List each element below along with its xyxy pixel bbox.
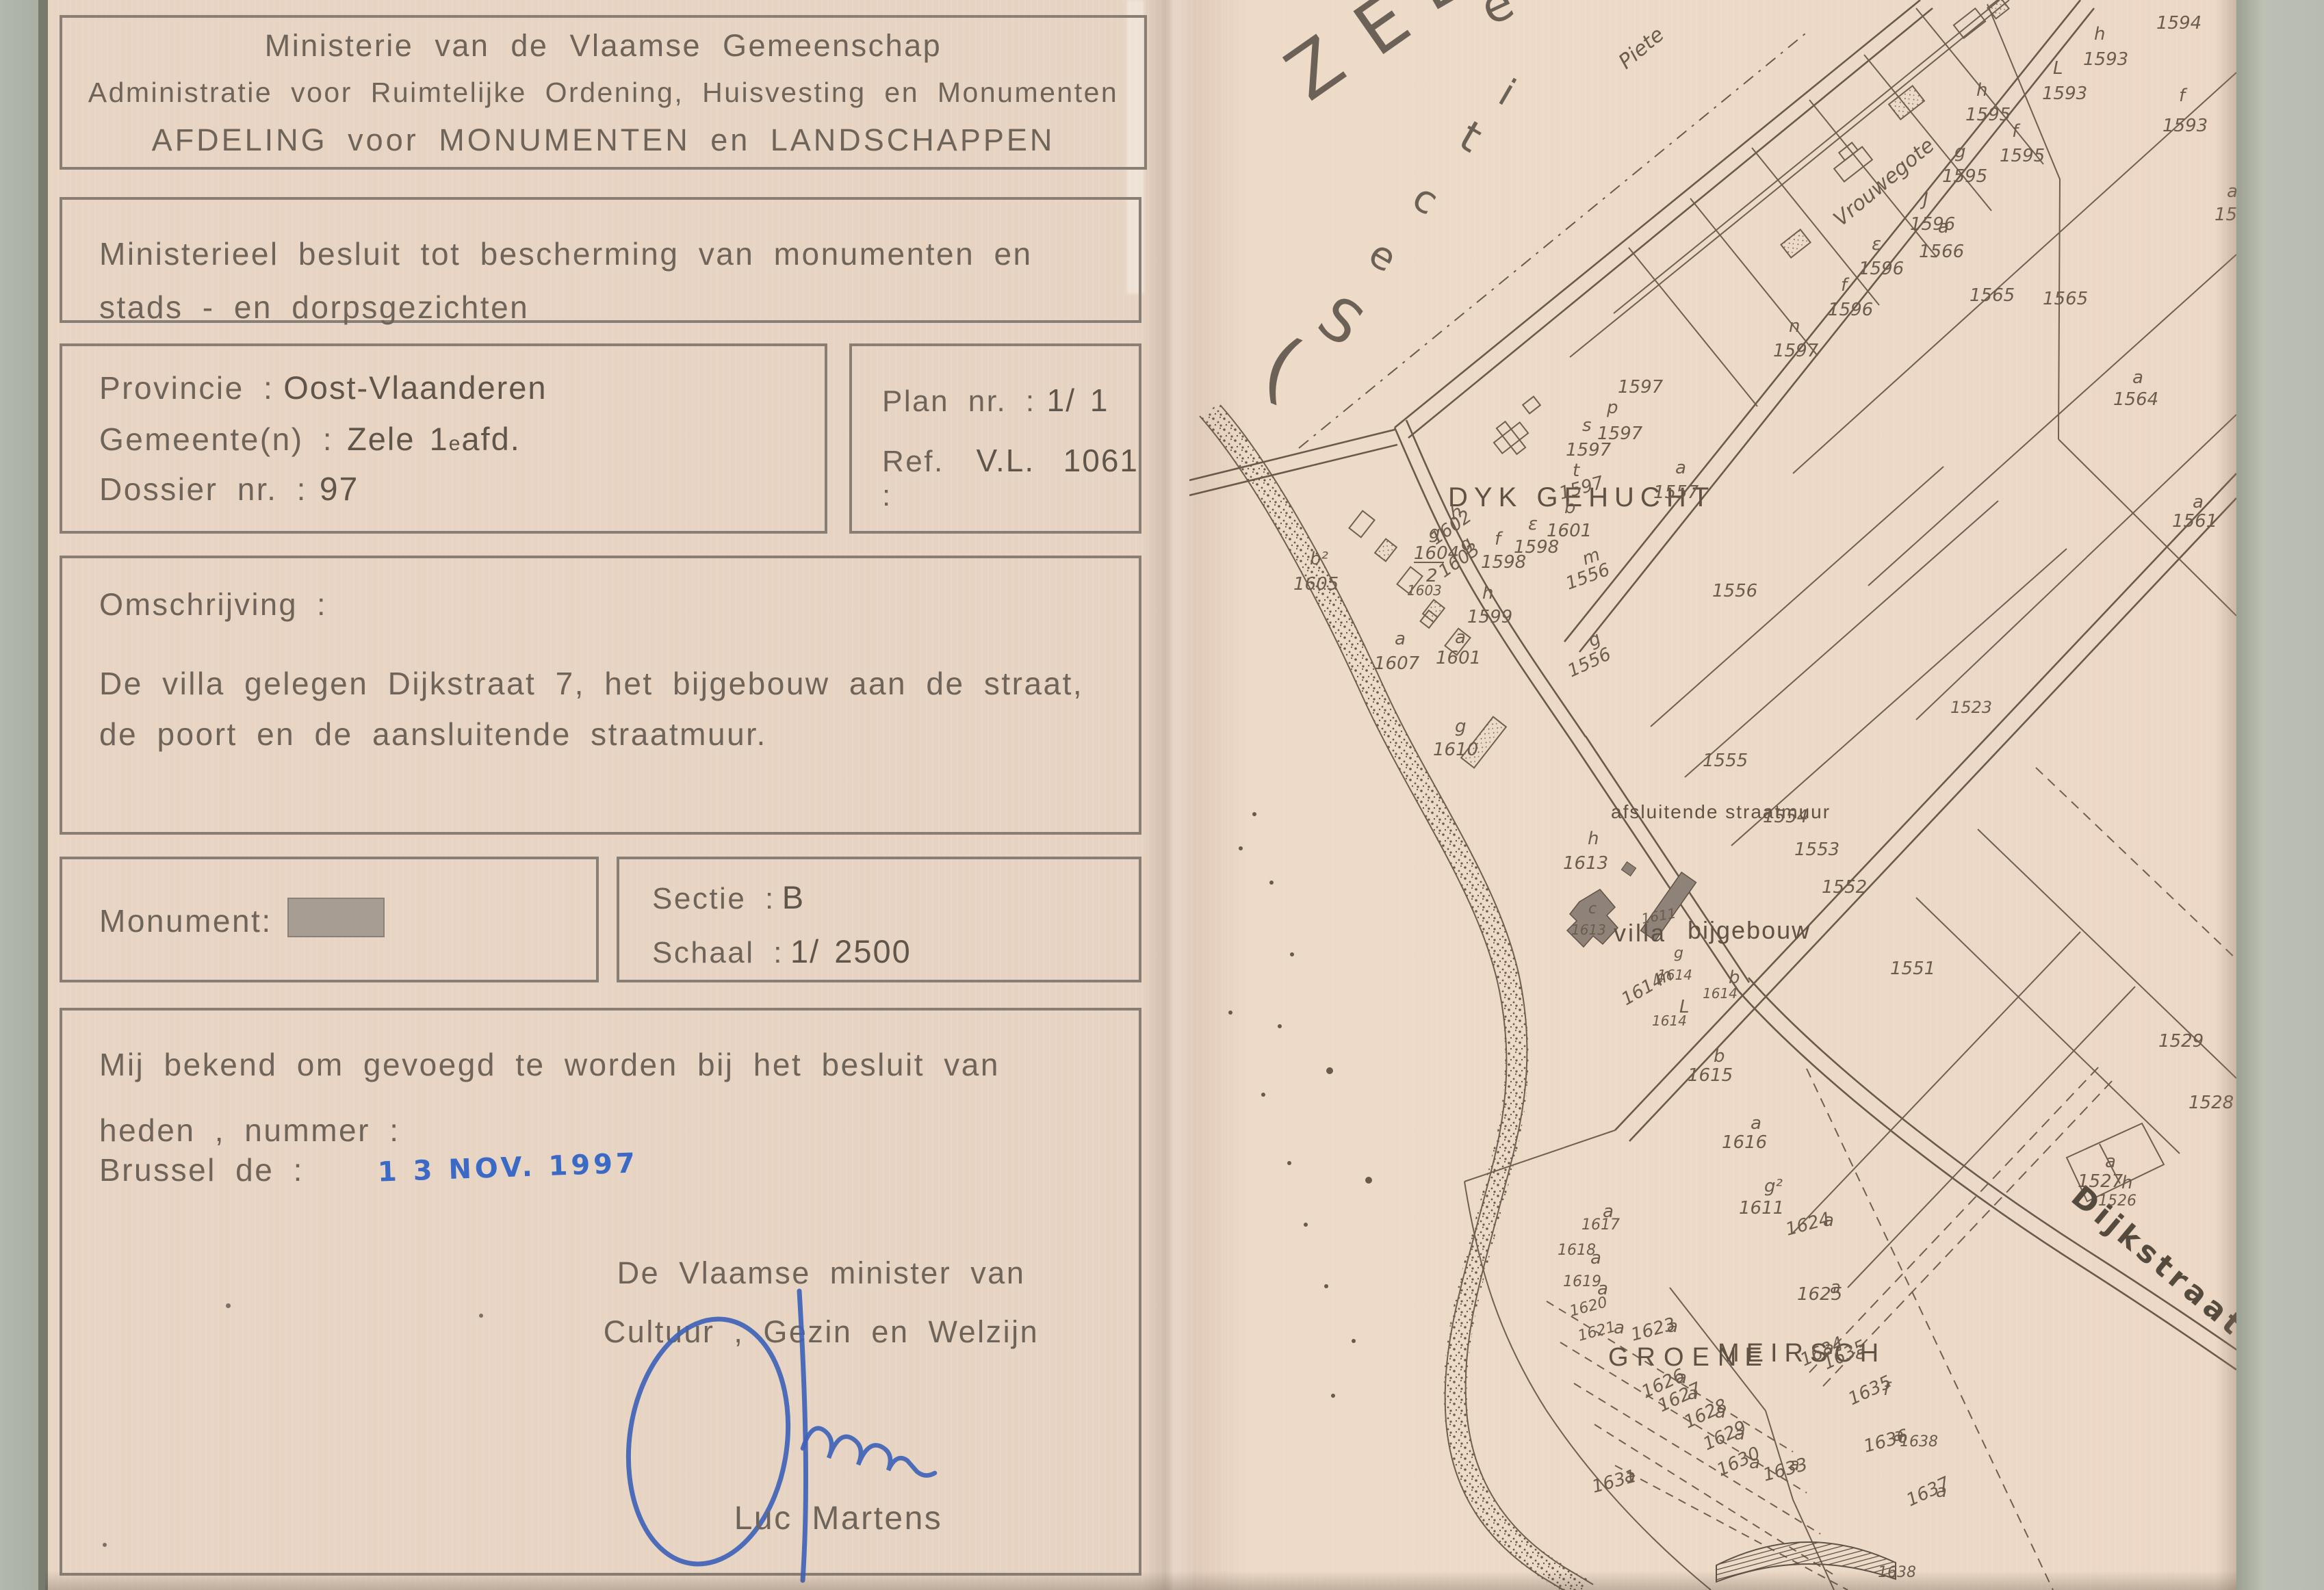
map-label: 1605 [1293,574,1339,595]
map-label: 1554 [1763,807,1808,827]
map-label: ε [1872,234,1881,255]
map-label: 1614 [1652,1013,1687,1029]
map-label: 1556 [1712,581,1757,601]
map-label: 1565 [1970,285,2015,306]
map-label: 1523 [1950,698,1992,717]
map-label: E [1339,0,1424,72]
map-label: 1597 [1773,341,1819,361]
map-label: 1601 [1436,648,1481,668]
map-label: h [1588,829,1599,849]
province-value: Oost-Vlaanderen [283,369,547,406]
map-label: 1631 [1590,1466,1639,1498]
map-label: a [1938,217,1949,237]
map-label: h [1482,583,1493,603]
map-label: a [1751,1113,1761,1134]
administration-line: Administratie voor Ruimtelijke Ordening,… [88,69,1118,116]
province-box: Provincie : Oost-Vlaanderen Gemeente(n) … [60,343,827,534]
decree-line1: Ministerieel besluit tot bescherming van… [99,227,1139,281]
signatory-name: Luc Martens [677,1500,999,1537]
map-label: b [1714,1046,1725,1067]
map-label: n [1789,316,1800,337]
map-label: a [1614,1318,1625,1338]
map-label: 1624 [1783,1209,1833,1240]
province-label: Provincie : [99,369,274,406]
map-label: c [1405,175,1445,224]
sectie-label: Sectie : [652,882,775,916]
date-stamp: 1 3 NOV. 1997 [377,1147,639,1188]
map-label: 1564 [2113,389,2158,410]
map-label: ( [1251,320,1314,416]
map-label: 1595 [2000,146,2045,166]
department-line: AFDELING voor MONUMENTEN en LANDSCHAPPEN [152,116,1055,164]
map-label: L [1403,0,1472,26]
page-fold [1141,0,1196,1590]
map-label: a [2132,367,2143,388]
plan-box: Plan nr. : 1/ 1 Ref. : V.L. 1061 [849,343,1141,534]
map-label: 1593 [2083,49,2128,70]
map-label: 1610 [1433,740,1478,760]
description-box: Omschrijving : De villa gelegen Dijkstra… [60,556,1141,835]
map-label: e [1361,231,1404,282]
map-label: t [1451,111,1491,162]
map-label: 1615 [1688,1065,1733,1086]
decree-title-box: Ministerieel besluit tot bescherming van… [60,197,1141,323]
map-label: 1633 [1761,1455,1810,1486]
dust-speck [479,1314,483,1318]
bottom-shadow [45,1571,2236,1590]
ref-label: Ref. : [882,445,966,513]
map-label: Z [1271,20,1359,116]
cadastral-map: ZELe(SectiPieteVrouwegoteDYK GEHUCHTafsl… [1189,0,2236,1590]
map-label: 1637 [1903,1473,1953,1511]
map-label: L [2053,58,2063,79]
map-labels: ZELe(SectiPieteVrouwegoteDYK GEHUCHTafsl… [1251,0,2236,1581]
scanner-edge-right [2236,0,2324,1590]
map-label: g [1954,142,1966,162]
monument-box: Monument: [60,857,599,982]
closing-box: Mij bekend om gevoegd te worden bij het … [60,1008,1141,1576]
map-label: 1552 [1822,877,1867,898]
ministry-line: Ministerie van de Vlaamse Gemeenschap [265,22,942,69]
monument-label: Monument: [99,903,272,939]
map-label: f [2179,86,2188,106]
closing-line2: heden , nummer : [99,1112,400,1149]
closing-line1: Mij bekend om gevoegd te worden bij het … [99,1046,1000,1083]
plan-label: Plan nr. : [882,385,1036,419]
map-label: s [1582,415,1592,436]
map-label: a [1395,629,1406,649]
map-label: 1616 [1722,1132,1767,1153]
dust-speck [226,1303,231,1308]
map-label: g [1674,945,1683,962]
plan-value: 1/ 1 [1047,382,1109,419]
map-label: 1613 [1563,853,1608,874]
map-label: 1555 [1703,751,1748,771]
map-roads [1189,0,2236,1370]
map-label: Piete [1614,23,1669,74]
map-label: 1557 [1653,482,1699,503]
map-label: 1593 [2162,116,2208,136]
map-label: h [1976,80,1987,101]
map-label: 1635 [1845,1372,1895,1409]
map-label: 1611 [1640,904,1677,926]
paper-edge-right [2216,0,2236,1590]
map-label: 1638 [1900,1433,1938,1450]
dossier-label: Dossier nr. : [99,471,307,508]
description-line1: De villa gelegen Dijkstraat 7, het bijge… [99,658,1139,709]
map-label: a [2193,492,2204,512]
map-label: 2 [1426,566,1438,586]
map-label: g [1429,523,1441,543]
map-label: 1526 [2098,1192,2136,1210]
municipality-label: Gemeente(n) : [99,421,333,458]
map-label: a [1455,627,1466,648]
map-label: 1597 [1618,377,1664,397]
map-label: bijgebouw [1688,916,1811,944]
municipality-value: Zele 1 [347,420,449,458]
map-label: 1553 [1794,839,1839,860]
map-label: f [1495,529,1503,549]
survey-dots [1228,812,1372,1398]
map-label: f [1841,275,1850,296]
map-label: 1611 [1739,1198,1784,1218]
schaal-label: Schaal : [652,936,784,970]
ref-value: V.L. 1061 [977,442,1139,479]
map-label: a [1590,1248,1601,1268]
map-label: c [1588,900,1597,917]
map-label: e [1472,0,1523,36]
map-label: 1625 [1797,1284,1842,1305]
monument-color-swatch [287,898,385,937]
map-label: 1593 [2042,83,2087,104]
municipality-sup: e [449,432,462,456]
map-label: 1561 [2172,511,2217,532]
map-label: h [2121,1173,2132,1193]
map-label: f [2012,121,2021,142]
scanner-edge-left [0,0,40,1590]
map-label: 1619 [1563,1273,1601,1290]
map-label: 1596 [1828,300,1873,320]
map-label: 1607 [1374,653,1420,674]
map-label: 1614 [1703,985,1738,1002]
map-label: 1595 [1942,166,1987,187]
map-label: Dijkstraat [2065,1179,2236,1344]
map-label: 1551 [1890,959,1935,979]
map-label: 1595 [1965,105,2011,125]
map-label: h [2094,24,2105,44]
map-label: 1598 [1481,552,1526,573]
map-label: S [1306,283,1375,360]
section-box: Sectie : B Schaal : 1/ 2500 [617,857,1141,982]
villa-building [1567,889,1618,947]
map-label: 1599 [1467,607,1512,627]
map-label: a [2105,1151,2116,1172]
header-box: Ministerie van de Vlaamse Gemeenschap Ad… [60,15,1147,170]
map-label: 1604 [1414,543,1459,564]
map-label: 1565 [2043,289,2088,309]
map-label: g [1455,716,1467,737]
map-label: 1597 [1566,440,1612,460]
map-label: 1566 [1919,242,1964,262]
schaal-value: 1/ 2500 [790,933,912,970]
description-line2: de poort en de aansluitende straatmuur. [99,709,1139,759]
map-label: 1594 [2156,13,2202,34]
decree-line2: stads - en dorpsgezichten [99,281,1139,334]
brussel-label: Brussel de : [99,1151,304,1188]
map-label: 1556 [1564,644,1614,681]
dossier-value: 97 [320,471,359,508]
description-title: Omschrijving : [99,587,1139,623]
sectie-value: B [782,878,805,916]
map-label: 1614 [1618,969,1668,1010]
map-label: 1613 [1571,922,1606,938]
dust-speck [103,1543,107,1547]
map-label: 1617 [1581,1216,1620,1234]
map-label: b² [1310,549,1328,569]
map-label: ε [1528,514,1538,534]
map-label: 1527 [2078,1171,2123,1192]
map-label: 1620 [1568,1294,1610,1320]
map-label: g² [1764,1176,1783,1197]
map-label: a [1675,458,1686,478]
dike-band [1200,405,1593,1590]
map-label: 1529 [2158,1031,2204,1052]
map-label: b [1564,497,1576,518]
map-label: 1623 [1629,1314,1678,1346]
municipality-suffix: afd. [461,420,520,458]
map-label: i [1491,71,1523,115]
map-label: 1596 [1859,259,1904,279]
scanned-decree-page: Ministerie van de Vlaamse Gemeenschap Ad… [0,0,2324,1590]
map-label: p [1606,397,1618,418]
paper-edge-shadow [38,0,48,1590]
